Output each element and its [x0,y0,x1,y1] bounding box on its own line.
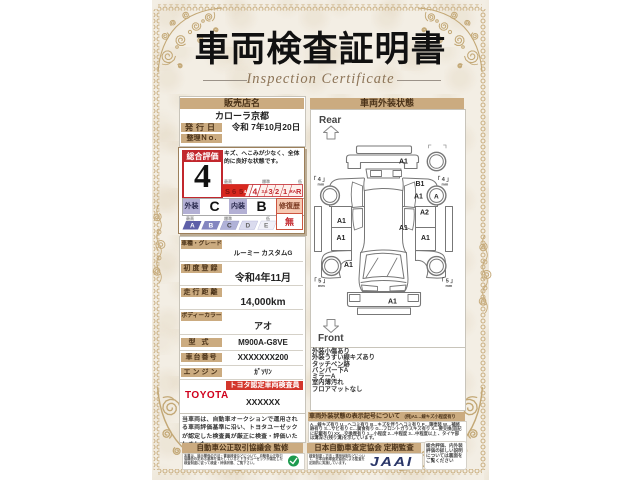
svg-text:A: A [434,194,439,201]
svg-text:A1: A1 [337,218,346,225]
svg-text:4: 4 [253,187,258,197]
svg-text:A1: A1 [388,299,397,306]
svg-text:A: A [190,223,195,230]
svg-text:mm: mm [318,183,325,187]
svg-text:A1: A1 [337,235,346,242]
svg-text:A1: A1 [399,159,408,166]
svg-text:mm: mm [442,183,449,187]
svg-text:A1: A1 [344,262,353,269]
svg-text:A2: A2 [420,210,429,217]
svg-text:D: D [246,223,251,230]
svg-text:B: B [209,223,214,230]
svg-text:A1: A1 [399,225,408,232]
svg-text:mm: mm [318,284,325,288]
svg-text:B1: B1 [416,181,425,188]
svg-text:S: S [225,187,230,196]
svg-text:Rear: Rear [319,115,341,126]
svg-text:R: R [296,187,302,196]
svg-text:標準: 標準 [262,178,270,184]
svg-text:低: 低 [297,178,302,184]
svg-text:4.5: 4.5 [244,189,251,194]
svg-text:E: E [264,223,269,230]
svg-text:5: 5 [239,187,243,196]
svg-text:A1: A1 [414,194,423,201]
svg-text:3: 3 [269,187,273,196]
svg-text:最高: 最高 [186,215,194,221]
svg-text:最高: 最高 [224,178,232,184]
svg-text:2: 2 [275,187,279,196]
svg-text:6: 6 [232,187,236,196]
svg-text:C: C [227,223,232,230]
svg-text:mm: mm [446,284,453,288]
svg-text:A1: A1 [421,235,430,242]
svg-text:標準: 標準 [224,215,232,221]
svg-text:1: 1 [283,187,287,196]
svg-text:3.5: 3.5 [262,189,269,194]
svg-text:低: 低 [265,215,270,221]
svg-text:Front: Front [318,333,344,344]
